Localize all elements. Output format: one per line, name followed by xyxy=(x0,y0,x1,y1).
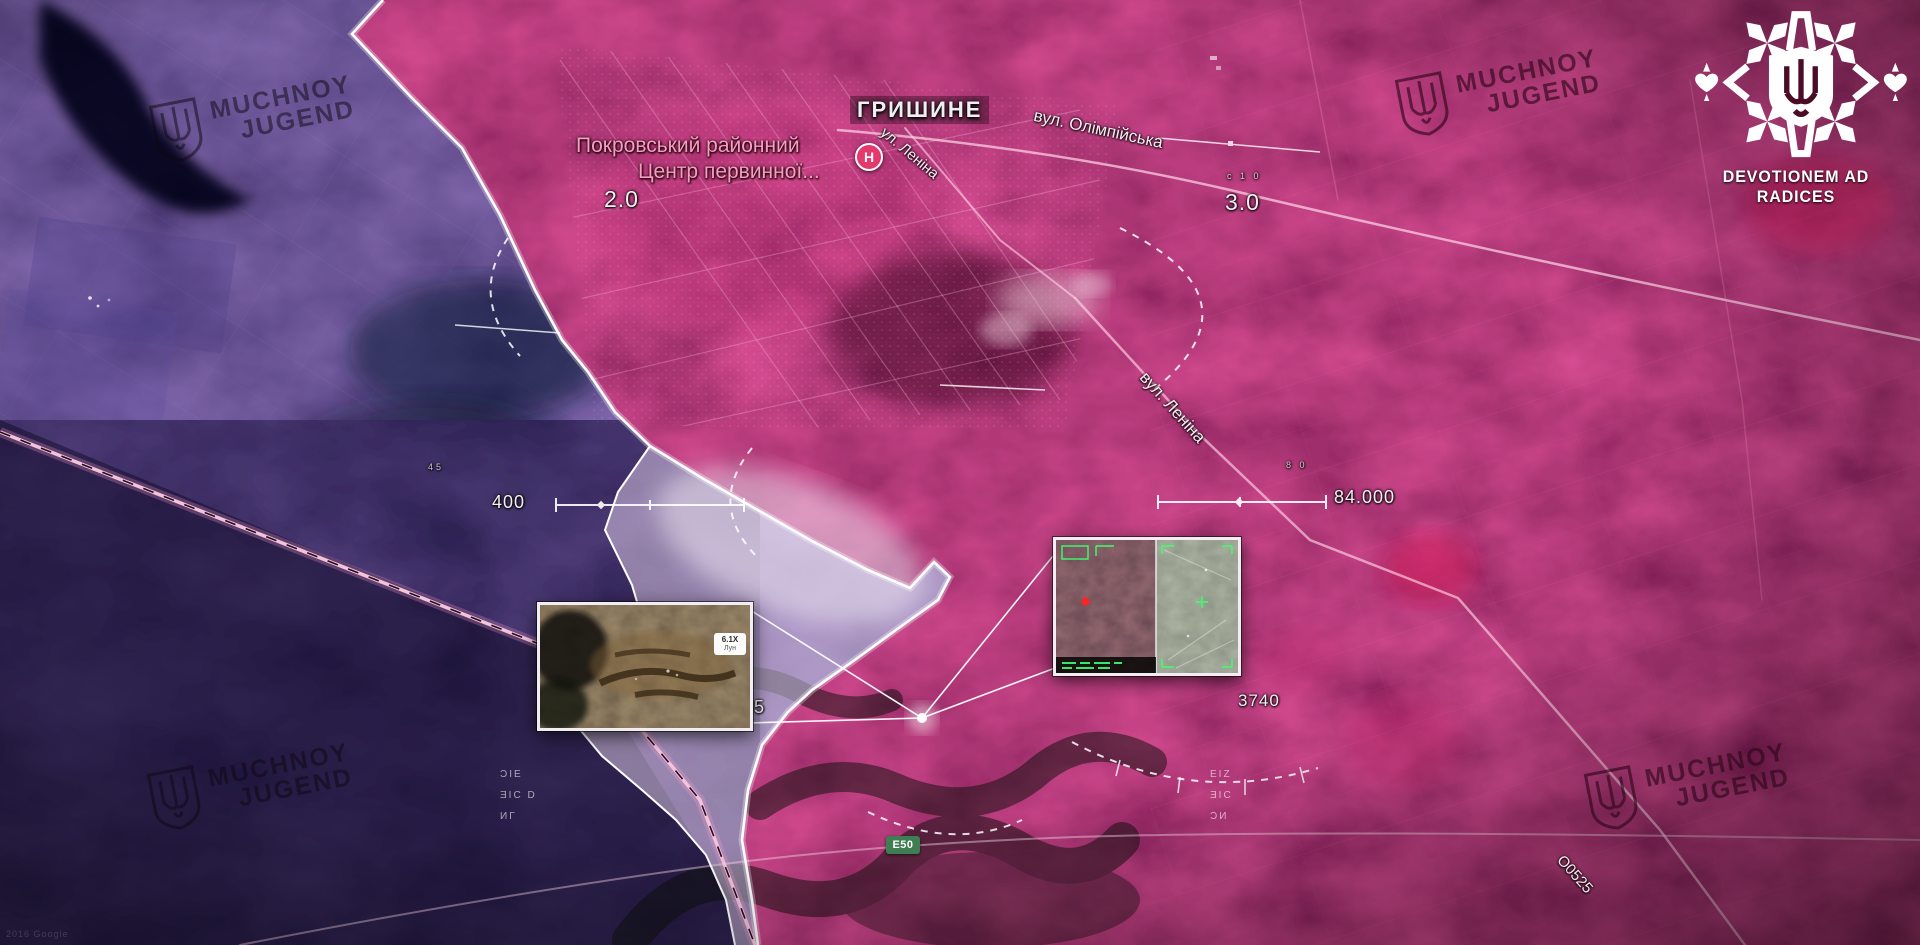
zoom-level-sub: Лун xyxy=(717,644,743,653)
glyph-line: ΕΙΖ xyxy=(1210,764,1233,785)
glyph-line: ƎΙС xyxy=(1210,785,1233,806)
map-attribution: 2016 Google xyxy=(6,929,69,939)
inset-recon-screenshot xyxy=(1053,537,1241,676)
micro-text-sto: с 1 0 xyxy=(1227,171,1262,181)
poi-name-line2: Центр первинної... xyxy=(638,160,820,184)
scale-value-left: 400 xyxy=(492,492,525,513)
distance-bottom-right: 3740 xyxy=(1238,691,1280,711)
zoom-level-chip: 6.1X Лун xyxy=(714,633,746,655)
hospital-marker: Н xyxy=(855,143,883,171)
micro-text-80: 8 0 xyxy=(1286,460,1308,470)
scale-value-right: 84.000 xyxy=(1334,487,1395,508)
route-badge-e50: Е50 xyxy=(886,836,920,854)
annotated-battle-map: ГРИШИНЕ Покровський районний Центр перви… xyxy=(0,0,1920,945)
glyph-line: ИГ xyxy=(500,806,537,827)
frontage-width-right: 3.0 xyxy=(1225,189,1260,216)
micro-text-45: 45 xyxy=(428,462,444,472)
glyph-stack-left: ϽΙΕ ƎΙС D ИГ xyxy=(500,764,537,827)
vignette xyxy=(0,0,1920,945)
unit-emblem xyxy=(1694,4,1908,166)
town-label: ГРИШИНЕ xyxy=(850,96,989,124)
recon-feed xyxy=(1056,540,1238,673)
emblem-motto: DEVOTIONEM AD RADICES xyxy=(1683,167,1909,207)
zoom-level-value: 6.1X xyxy=(717,635,743,644)
poi-name-line1: Покровський районний xyxy=(576,134,800,158)
map-canvas xyxy=(0,0,1920,945)
drone-photo xyxy=(540,605,750,728)
glyph-line: ϽΙΕ xyxy=(500,764,537,785)
glyph-stack-right: ΕΙΖ ƎΙС ƆИ xyxy=(1210,764,1233,827)
flaming-heart-icon xyxy=(1884,63,1907,101)
frontage-width-left: 2.0 xyxy=(604,186,639,213)
inset-drone-photo-trench: 6.1X Лун xyxy=(537,602,753,731)
flaming-heart-icon xyxy=(1695,63,1718,101)
glyph-line: ƎΙС D xyxy=(500,785,537,806)
glyph-line: ƆИ xyxy=(1210,806,1233,827)
